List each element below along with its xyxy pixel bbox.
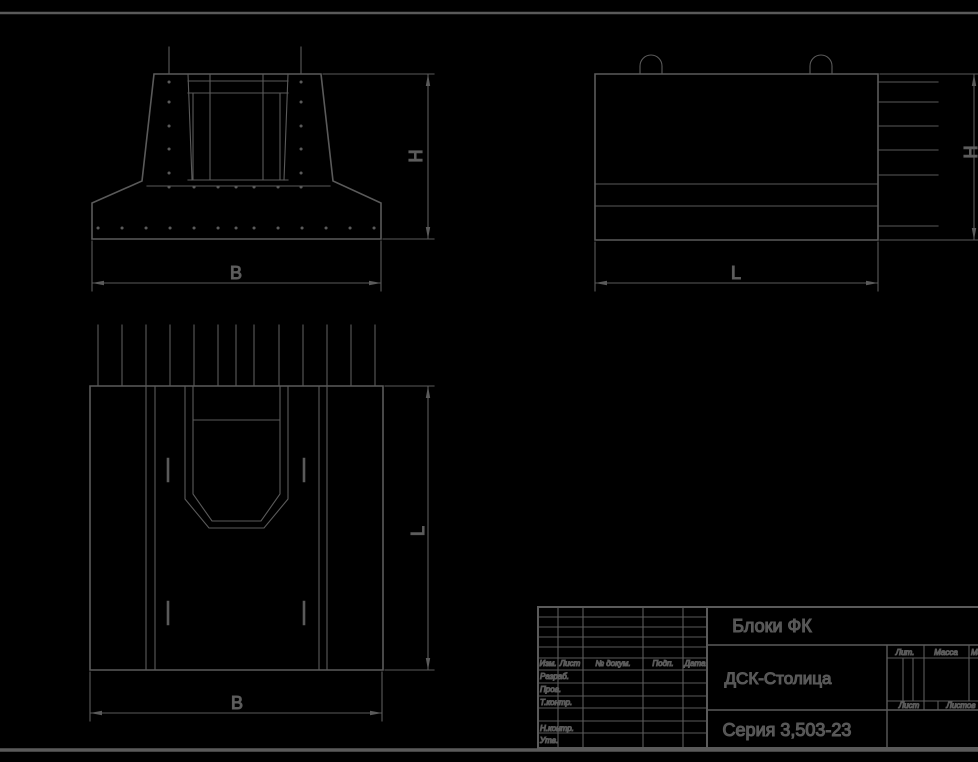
plan-dimension-L: L <box>385 386 434 670</box>
side-dimension-L: L <box>595 242 878 291</box>
titleblock-company: ДСК-Столица <box>725 669 832 688</box>
col-data: Дата <box>683 659 706 668</box>
plan-length-label: L <box>408 526 428 536</box>
plan-width-label: B <box>231 693 243 713</box>
plan-view: L B <box>90 325 434 721</box>
side-dimension-H: H <box>880 74 978 240</box>
col-podp: Подп. <box>652 659 673 668</box>
side-width-label: L <box>731 263 741 283</box>
sheet-frame <box>0 13 978 750</box>
row-utv: Утв. <box>539 736 558 745</box>
cell-sheets: Листов <box>945 701 975 710</box>
front-width-label: B <box>230 263 242 283</box>
drawing-sheet: H B H L <box>0 0 978 762</box>
front-interior-lines <box>147 47 330 186</box>
plan-section-ticks <box>168 459 304 624</box>
row-tkontr: Т.контр. <box>540 698 572 707</box>
col-docnum: № докум. <box>595 659 630 668</box>
side-height-label: H <box>961 146 978 159</box>
cell-massa: Масса <box>934 648 958 657</box>
side-rebar-stubs <box>878 82 938 226</box>
front-rebar-dots <box>98 82 374 228</box>
front-dimension-H: H <box>323 74 434 239</box>
drawing-canvas: H B H L <box>0 0 978 762</box>
plan-channel <box>185 386 288 528</box>
row-razrab: Разраб. <box>540 672 569 681</box>
row-prov: Пров. <box>540 685 561 694</box>
side-lifting-loops <box>640 55 832 74</box>
front-dimension-B: B <box>92 241 381 291</box>
front-outline <box>92 74 381 239</box>
cell-sheet: Лист <box>898 701 920 710</box>
front-height-label: H <box>406 150 426 163</box>
row-nkontr: Н.контр. <box>540 724 574 733</box>
side-view: H L <box>595 55 978 291</box>
titleblock-product-name: Блоки ФК <box>732 616 812 636</box>
col-izm: Изм. <box>539 659 556 668</box>
col-list: Лист <box>559 659 581 668</box>
front-view: H B <box>92 47 434 291</box>
titleblock-series: Серия 3,503-23 <box>723 720 852 740</box>
side-interior-lines <box>595 184 878 206</box>
side-outline <box>595 74 878 240</box>
plan-dimension-B: B <box>90 672 382 721</box>
title-block: Блоки ФК ДСК-Столица Серия 3,503-23 Изм.… <box>538 607 978 748</box>
plan-rebar-stubs <box>98 325 375 386</box>
cell-masshtab: Масштаб <box>971 648 978 657</box>
cell-lit: Лит. <box>895 648 915 657</box>
